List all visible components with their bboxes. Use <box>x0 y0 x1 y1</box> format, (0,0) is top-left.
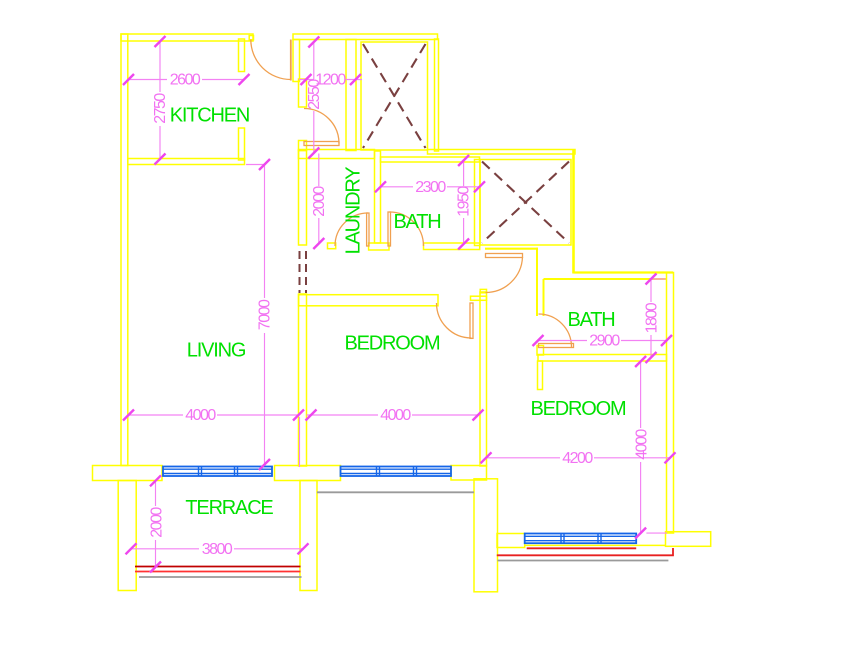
svg-text:2750: 2750 <box>152 93 169 124</box>
svg-text:LIVING: LIVING <box>187 339 246 361</box>
svg-text:BATH: BATH <box>567 309 614 331</box>
svg-text:TERRACE: TERRACE <box>185 497 273 519</box>
svg-text:2550: 2550 <box>306 79 323 110</box>
svg-text:2900: 2900 <box>589 332 620 349</box>
svg-text:2000: 2000 <box>149 507 166 538</box>
svg-text:7000: 7000 <box>257 299 274 330</box>
svg-text:1950: 1950 <box>456 186 473 217</box>
svg-text:1800: 1800 <box>644 302 661 333</box>
svg-text:BEDROOM: BEDROOM <box>531 398 626 420</box>
svg-text:KITCHEN: KITCHEN <box>170 104 249 126</box>
svg-text:2600: 2600 <box>170 72 201 89</box>
svg-text:4200: 4200 <box>562 450 593 467</box>
svg-text:4000: 4000 <box>380 407 411 424</box>
svg-text:BATH: BATH <box>393 211 440 233</box>
svg-text:BEDROOM: BEDROOM <box>345 332 440 354</box>
svg-text:4000: 4000 <box>185 407 216 424</box>
svg-text:2300: 2300 <box>415 179 446 196</box>
svg-text:LAUNDRY: LAUNDRY <box>343 167 365 255</box>
svg-text:4000: 4000 <box>633 429 650 460</box>
svg-text:3800: 3800 <box>202 541 233 558</box>
svg-text:2000: 2000 <box>311 186 328 217</box>
